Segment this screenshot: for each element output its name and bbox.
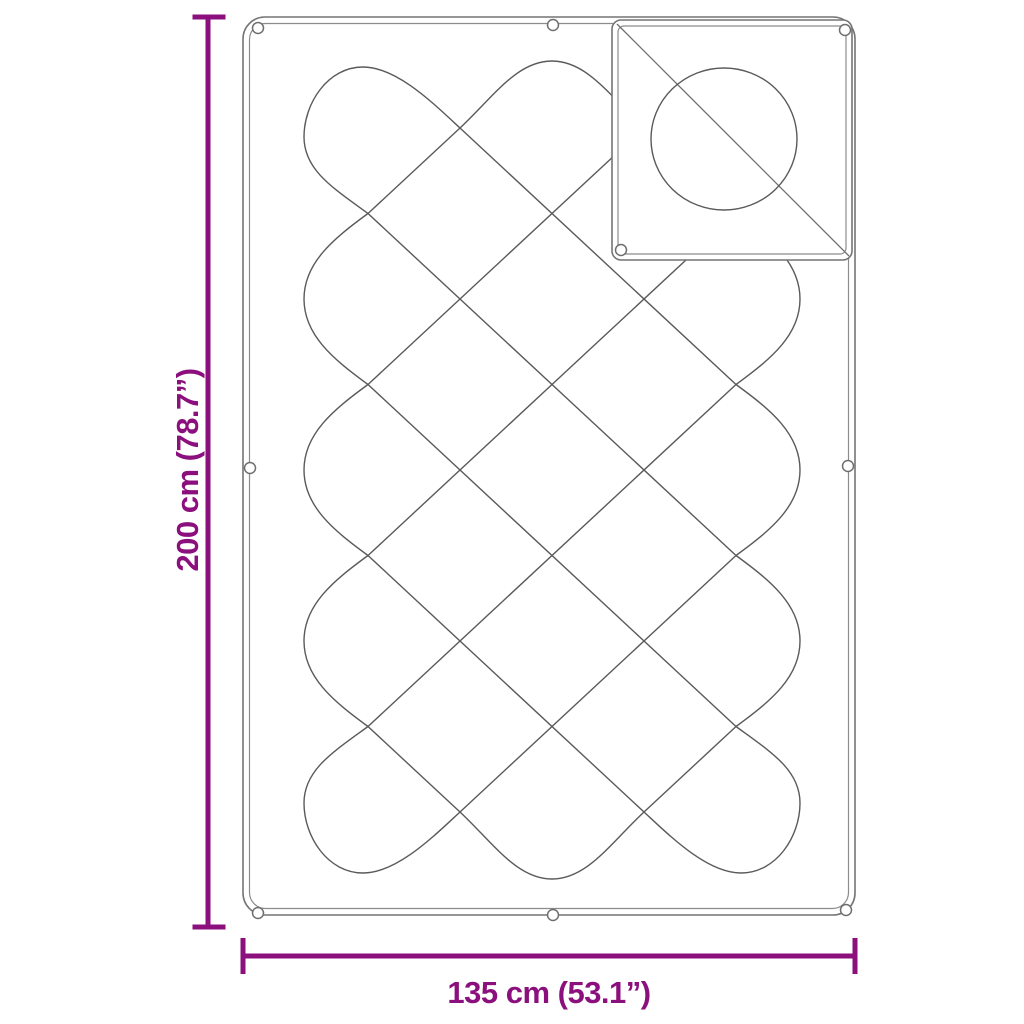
grommet-icon	[841, 905, 852, 916]
horizontal-dimension-cap-right	[853, 938, 858, 974]
grommet-icon	[843, 461, 854, 472]
grommet-icon	[548, 910, 559, 921]
product-dimension-diagram: 200 cm (78.7”) 135 cm (53.1”)	[0, 0, 1024, 1024]
vertical-dimension-shaft	[206, 17, 211, 927]
diagram-canvas: 200 cm (78.7”) 135 cm (53.1”)	[0, 0, 1024, 1024]
vertical-dimension-cap-bottom	[193, 925, 226, 930]
grommet-icon	[253, 23, 264, 34]
grommet-icon	[245, 463, 256, 474]
horizontal-dimension-cap-left	[241, 938, 246, 974]
grommet-icon	[840, 25, 851, 36]
width-dimension-label: 135 cm (53.1”)	[447, 975, 650, 1010]
vertical-dimension-cap-top	[193, 15, 226, 20]
horizontal-dimension-shaft	[243, 954, 855, 959]
height-dimension-label: 200 cm (78.7”)	[170, 368, 205, 571]
flap-outer-edge	[612, 20, 852, 260]
grommet-icon	[548, 20, 559, 31]
folded-corner-flap	[612, 20, 852, 260]
grommet-icon	[616, 245, 627, 256]
horizontal-dimension-line	[241, 938, 858, 974]
grommet-icon	[253, 908, 264, 919]
